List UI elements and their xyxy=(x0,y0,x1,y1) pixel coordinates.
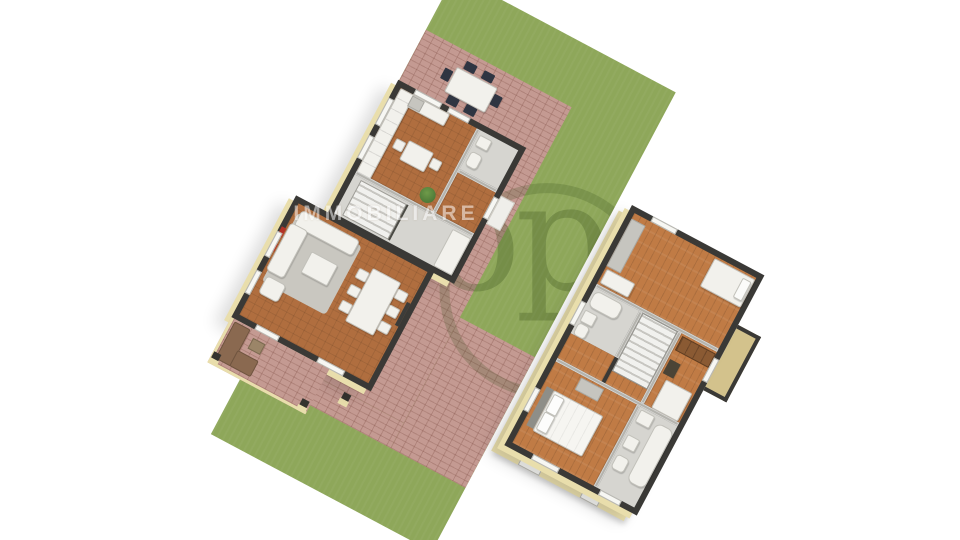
toilet xyxy=(610,453,630,474)
porch-post xyxy=(299,398,310,409)
washer xyxy=(635,409,656,429)
wc-toilet xyxy=(464,151,483,171)
desk-dark xyxy=(663,359,681,379)
porch-side-table xyxy=(248,338,266,355)
watermark-text: IMMOBILIARE xyxy=(288,202,484,226)
wc-sink xyxy=(475,135,493,152)
dining-table xyxy=(345,268,401,336)
bathtub xyxy=(626,422,675,490)
floor-plan-render: op xyxy=(0,0,960,540)
sink xyxy=(621,434,640,453)
hall-closet xyxy=(433,229,471,276)
